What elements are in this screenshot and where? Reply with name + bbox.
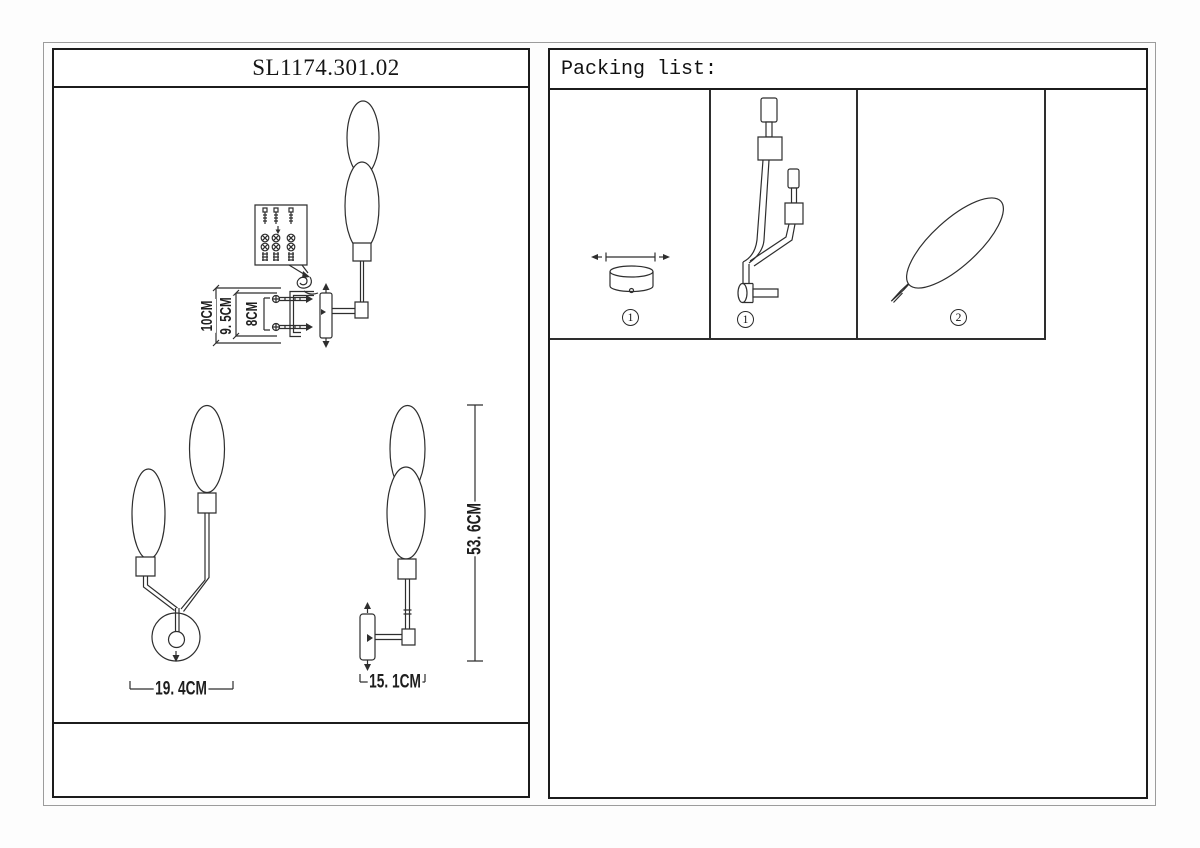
dim-mount-mid: 9. 5CM (219, 296, 235, 336)
mounting-screws (273, 295, 314, 331)
qty-badge-shade: 2 (950, 309, 967, 326)
packing-item-arm-assembly (738, 98, 803, 303)
packing-panel: Packing list: (548, 48, 1148, 799)
dim-front-width: 19. 4CM (154, 680, 209, 699)
footer-divider (54, 722, 528, 724)
dim-mount-holes: 8CM (245, 300, 261, 327)
packing-items-drawing (550, 50, 1146, 797)
packing-item-canopy (591, 253, 670, 293)
dim-mount-total: 10CM (200, 299, 216, 333)
packing-item-shade (891, 184, 1016, 302)
dim-total-height: 53. 6CM (466, 502, 485, 557)
qty-badge-canopy: 1 (622, 309, 639, 326)
hardware-detail-box (255, 205, 310, 278)
dim-side-depth: 15. 1CM (368, 673, 423, 692)
installation-diagram (213, 101, 379, 348)
front-view-drawing (130, 406, 233, 690)
canopy-width-arrows (591, 253, 670, 262)
lamp-technical-drawing (54, 50, 528, 796)
drawing-panel: SL1174.301.02 (52, 48, 530, 798)
side-view-drawing (360, 406, 425, 683)
qty-badge-arm: 1 (737, 311, 754, 328)
